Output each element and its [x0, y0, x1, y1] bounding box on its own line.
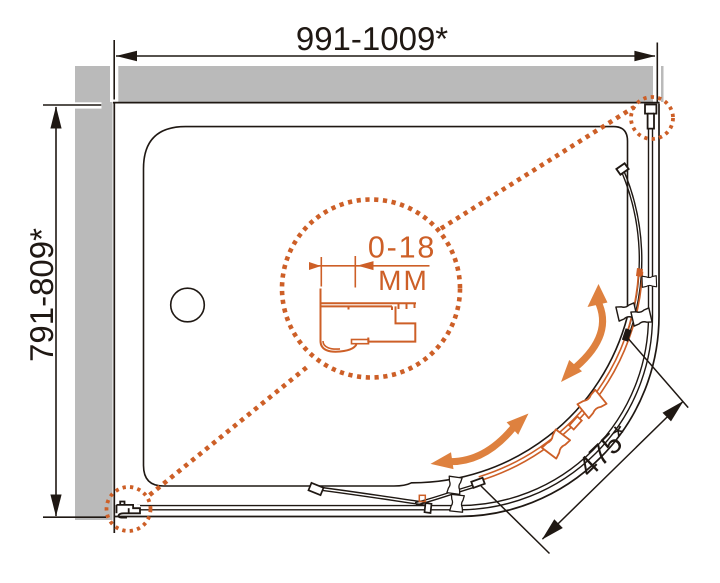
- svg-text:0-18: 0-18: [368, 231, 436, 265]
- svg-text:791-809*: 791-809*: [23, 228, 60, 362]
- svg-text:ММ: ММ: [378, 265, 429, 296]
- svg-text:991-1009*: 991-1009*: [296, 20, 448, 57]
